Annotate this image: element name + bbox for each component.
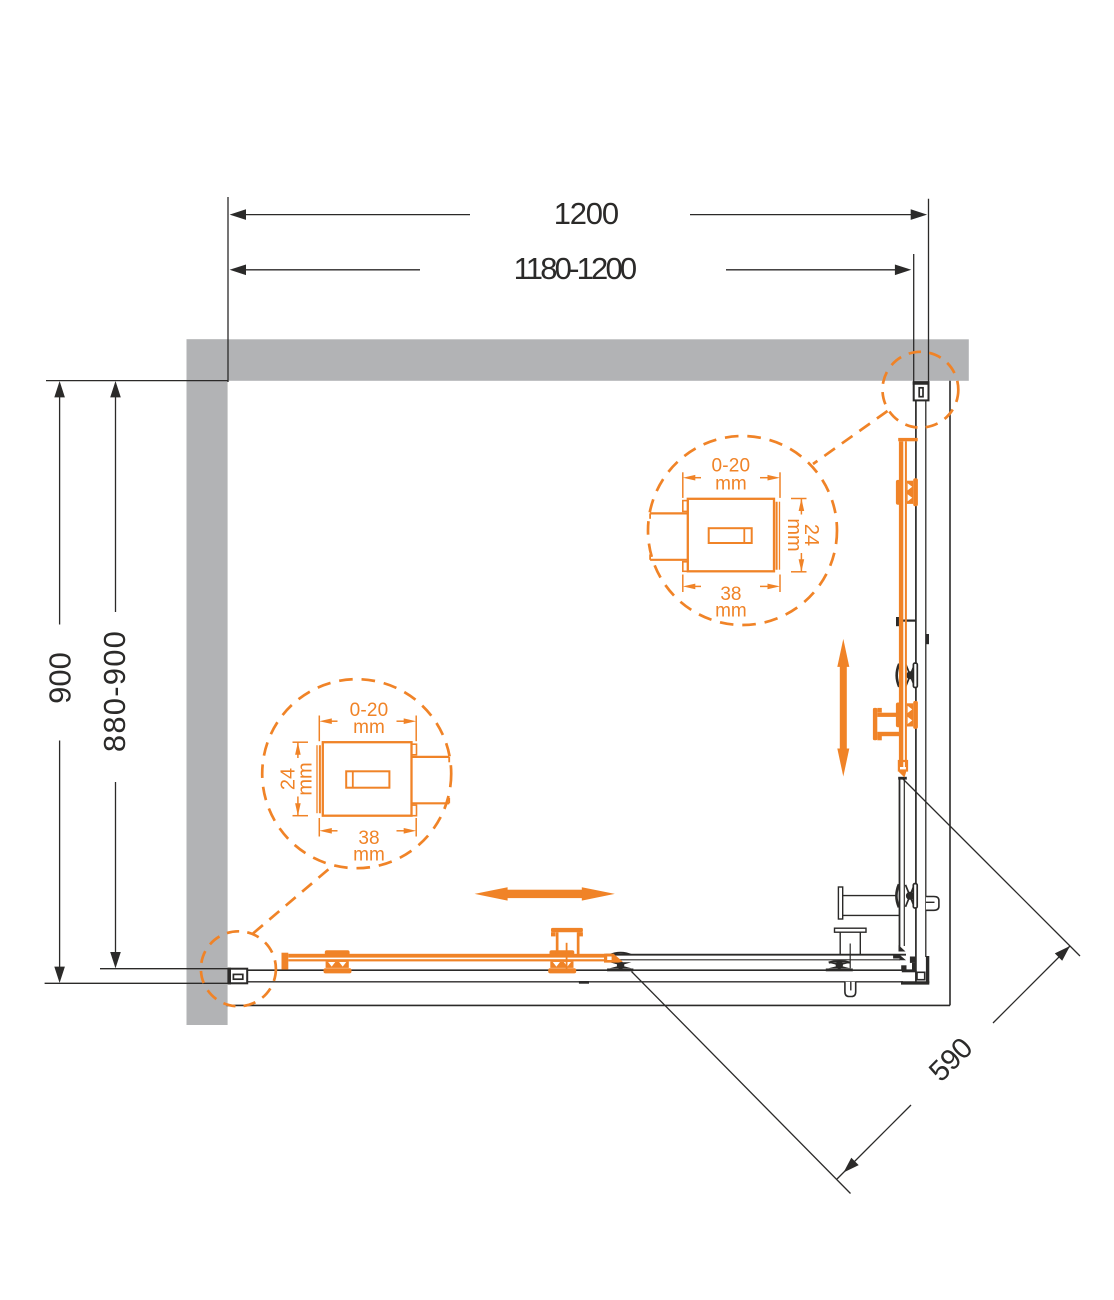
svg-text:mm: mm [715, 601, 747, 622]
svg-text:900: 900 [42, 652, 77, 704]
svg-text:mm: mm [353, 844, 385, 865]
svg-text:mm: mm [294, 762, 316, 795]
svg-text:1180-1200: 1180-1200 [514, 251, 637, 286]
svg-text:880-900: 880-900 [97, 630, 132, 752]
svg-text:mm: mm [353, 717, 385, 738]
svg-text:1200: 1200 [554, 196, 619, 231]
svg-text:mm: mm [783, 518, 805, 551]
svg-text:mm: mm [715, 474, 747, 495]
